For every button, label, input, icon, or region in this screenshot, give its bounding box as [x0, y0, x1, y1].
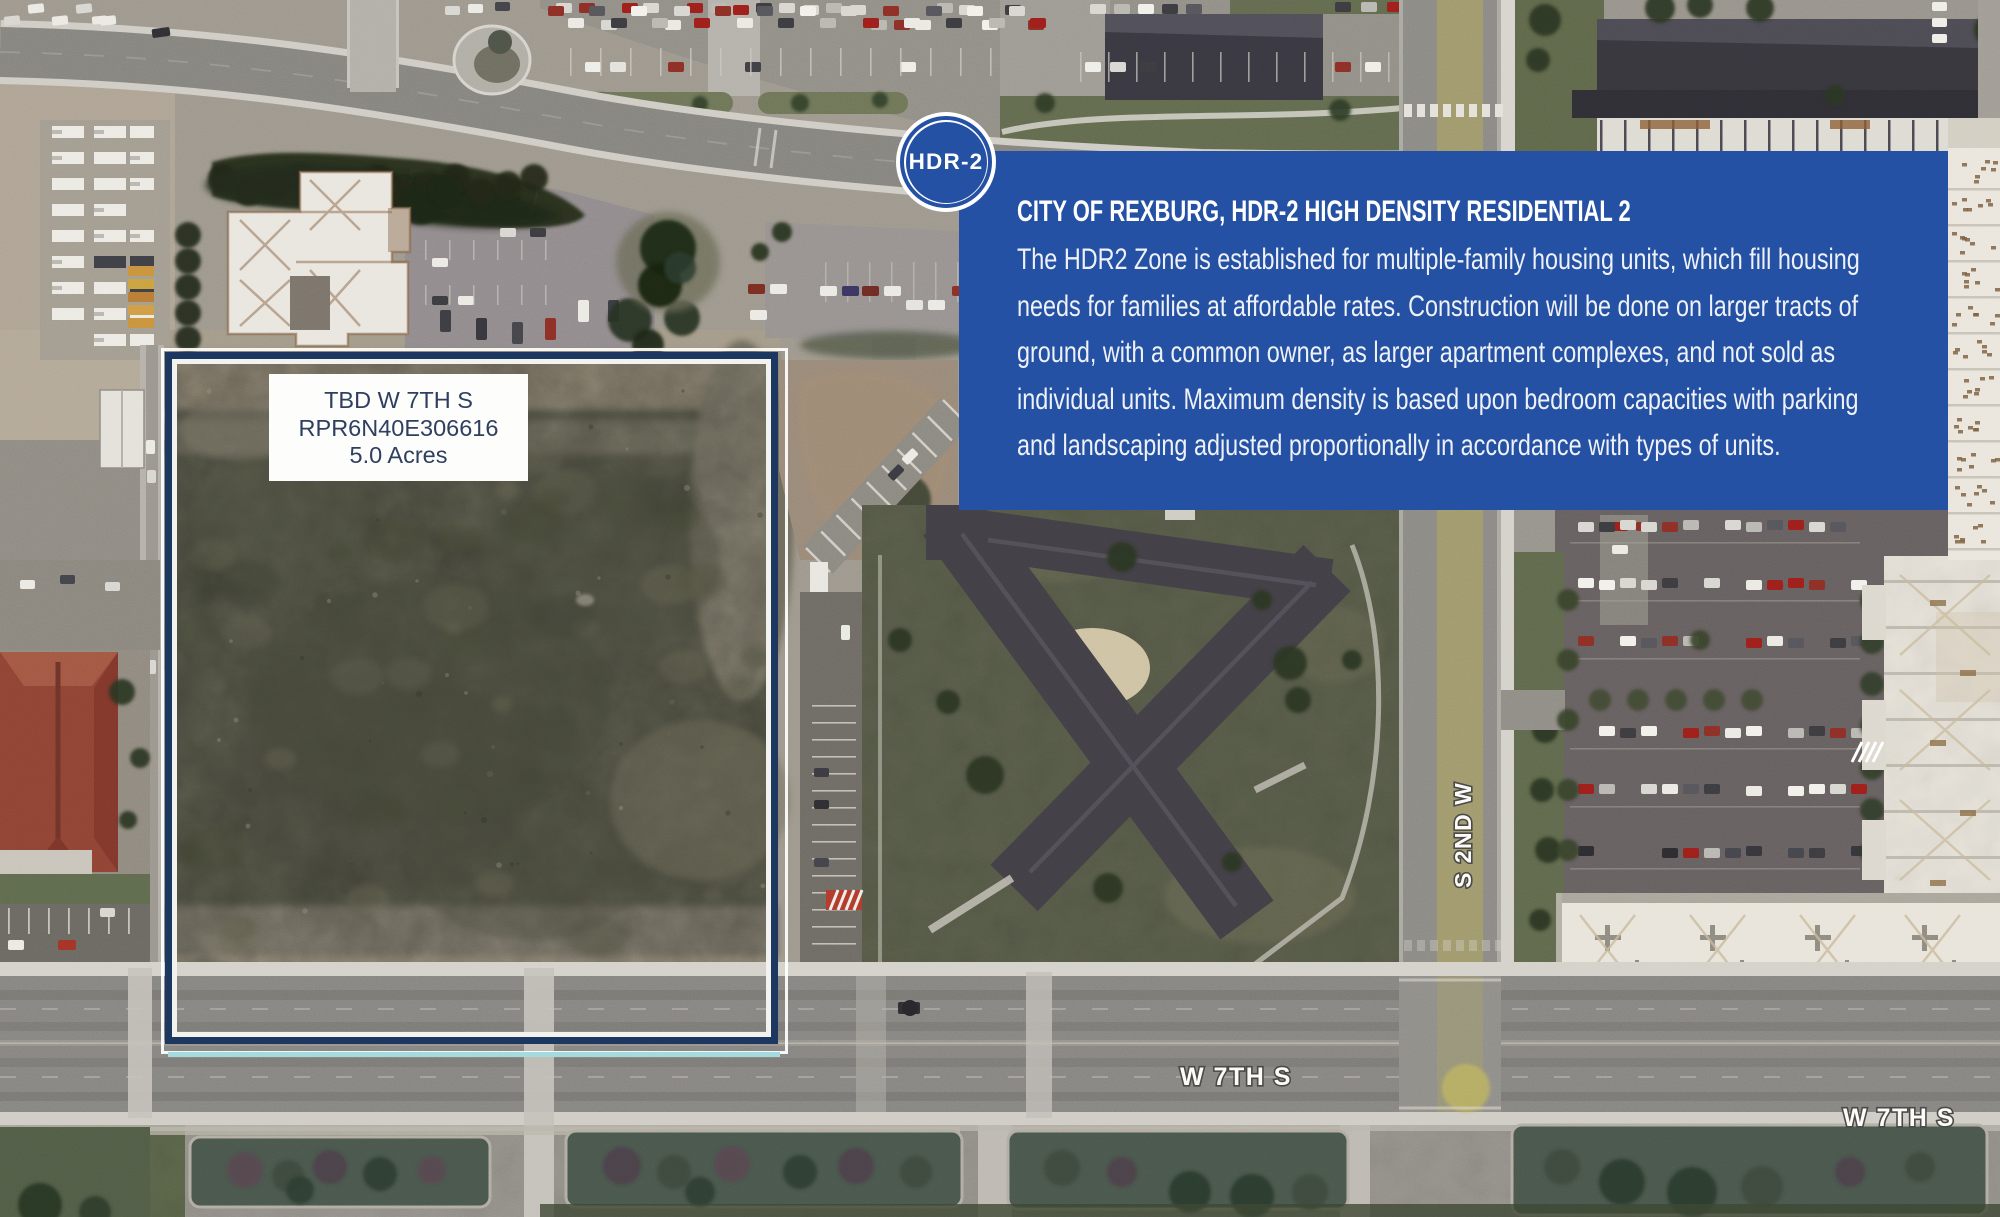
- svg-text:W 7TH S: W 7TH S: [1180, 1063, 1292, 1091]
- svg-text:W 7TH S: W 7TH S: [1843, 1104, 1955, 1132]
- svg-text:S 2ND W: S 2ND W: [1450, 782, 1476, 888]
